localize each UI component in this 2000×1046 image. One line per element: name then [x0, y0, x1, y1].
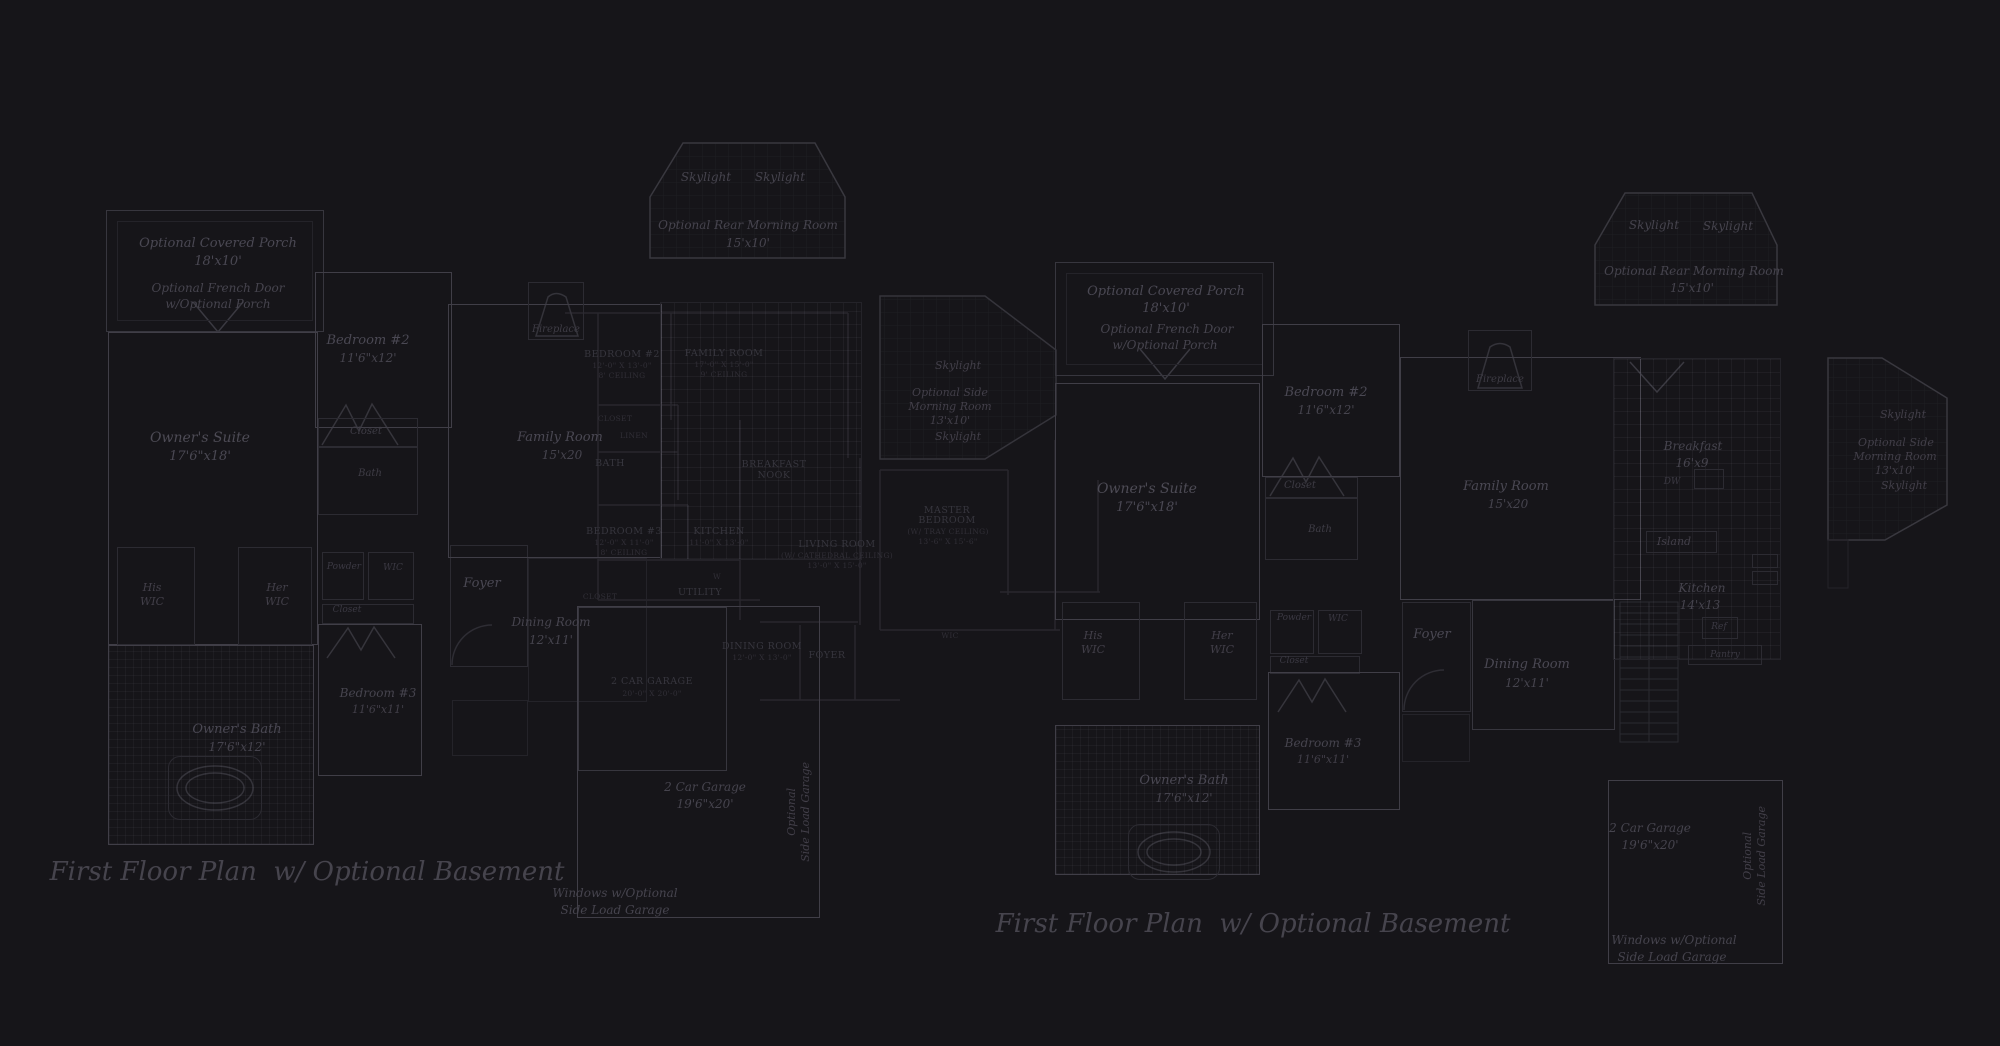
label-dining-left: Dining Room [495, 615, 607, 630]
label-foyer-left: Foyer [442, 576, 522, 592]
label-kitchen-right: Kitchen [1622, 581, 1782, 596]
label-french-door-2-left: w/Optional Porch [138, 297, 298, 312]
label-owners-suite-right: Owner's Suite [1067, 481, 1227, 499]
dishwasher-right [1694, 469, 1724, 489]
caption-right: First Floor Plan w/ Optional Basement [973, 908, 1533, 941]
label-windows-2-right: Side Load Garage [1592, 950, 1752, 965]
label-breakfast-right: Breakfast [1613, 439, 1773, 454]
label-rear-morning-left: Optional Rear Morning Room [648, 218, 848, 233]
caption-left: First Floor Plan w/ Optional Basement [27, 856, 587, 889]
label-porch-dims-left: 18'x10' [168, 254, 268, 270]
label-basement-kitchen-d1: 11'-0" X 13'-0" [669, 538, 769, 547]
front-stoop-right [1402, 714, 1470, 762]
label-side-skylight-2-left: Skylight [918, 430, 998, 444]
label-wic-left: WIC [363, 563, 423, 574]
label-garage-right: 2 Car Garage [1580, 821, 1720, 836]
label-basement-living-d1: (W/ CATHEDRAL CEILING) [777, 551, 897, 560]
label-garage-dims-left: 19'6"x20' [635, 797, 775, 812]
label-basement-closet: CLOSET [575, 414, 655, 423]
label-basement-bedroom2: BEDROOM #2 [572, 349, 672, 361]
label-pantry-right: Pantry [1685, 650, 1765, 661]
label-basement-garage: 2 CAR GARAGE [602, 676, 702, 688]
label-dw-right: DW [1652, 477, 1692, 488]
label-side-morning-dims-right: 13'x10' [1845, 464, 1945, 478]
label-his-wic-right: WIC [1063, 643, 1123, 657]
label-optional-side-load-1-left: Optional [785, 737, 799, 887]
label-foyer-right: Foyer [1392, 627, 1472, 643]
label-his-left: His [122, 581, 182, 595]
label-basement-foyer: FOYER [787, 650, 867, 662]
label-rear-morning-dims-left: 15'x10' [698, 236, 798, 251]
label-side-skylight-1-left: Skylight [918, 359, 998, 373]
label-dining-dims-right: 12'x11' [1452, 676, 1602, 691]
label-basement-living-d2: 13'-0" X 15'-0" [787, 561, 887, 570]
label-basement-garage-d1: 20'-0" X 20'-0" [602, 689, 702, 698]
label-rear-morning-right: Optional Rear Morning Room [1594, 264, 1794, 279]
label-closet2-left: Closet [317, 605, 377, 616]
label-side-morning-2-right: Morning Room [1845, 450, 1945, 464]
label-basement-wic: WIC [920, 631, 980, 640]
label-owners-bath-dims-right: 17'6"x12' [1104, 791, 1264, 806]
label-french-door-1-left: Optional French Door [128, 281, 308, 296]
label-family-room-right: Family Room [1426, 479, 1586, 495]
label-optional-side-load-2-left: Side Load Garage [799, 737, 813, 887]
label-closet2-right: Closet [1264, 656, 1324, 667]
label-skylight-1-right: Skylight [1614, 218, 1694, 233]
label-owners-bath-dims-left: 17'6"x12' [157, 740, 317, 755]
label-basement-closet2: CLOSET [560, 592, 640, 601]
label-bath-right: Bath [1280, 524, 1360, 537]
label-bedroom2-dims-right: 11'6"x12' [1256, 403, 1396, 418]
label-skylight-2-right: Skylight [1688, 219, 1768, 234]
kitchen-breakfast-zone-right [1613, 358, 1781, 660]
label-porch-right: Optional Covered Porch [1066, 284, 1266, 300]
label-bath-left: Bath [330, 468, 410, 481]
label-basement-master-d2: 13'-6" X 15'-6" [898, 537, 998, 546]
label-garage-dims-right: 19'6"x20' [1580, 838, 1720, 853]
label-optional-side-load-1-right: Optional [1741, 781, 1755, 931]
label-wic-right: WIC [1308, 614, 1368, 625]
label-side-skylight-1-right: Skylight [1863, 408, 1943, 422]
label-side-morning-1-left: Optional Side [900, 386, 1000, 400]
label-her-left: Her [247, 581, 307, 595]
label-basement-bath: BATH [570, 458, 650, 470]
label-fireplace-right: Fireplace [1460, 374, 1540, 387]
label-porch-left: Optional Covered Porch [118, 236, 318, 252]
label-basement-bedroom3-d1: 12'-0" X 11'-0" [574, 538, 674, 547]
label-basement-washer: W [707, 572, 727, 581]
label-ref-right: Ref [1699, 622, 1739, 633]
tub-surround-left [168, 756, 262, 820]
label-optional-side-load-2-right: Side Load Garage [1755, 781, 1769, 931]
label-bedroom2-left: Bedroom #2 [298, 333, 438, 349]
label-basement-bedroom2-d2: 8' CEILING [572, 371, 672, 380]
label-french-door-1-right: Optional French Door [1077, 322, 1257, 337]
label-garage-left: 2 Car Garage [635, 780, 775, 795]
label-breakfast-dims-right: 16'x9 [1642, 456, 1742, 471]
label-windows-2-left: Side Load Garage [535, 903, 695, 918]
label-porch-dims-right: 18'x10' [1116, 301, 1216, 317]
label-side-morning-dims-left: 13'x10' [900, 414, 1000, 428]
label-closet-left: Closet [326, 426, 406, 439]
label-her-right: Her [1192, 629, 1252, 643]
room-bath-left [318, 447, 418, 515]
label-owners-bath-left: Owner's Bath [157, 722, 317, 738]
label-bedroom3-dims-left: 11'6"x11' [308, 703, 448, 717]
label-side-morning-2-left: Morning Room [900, 400, 1000, 414]
label-bedroom3-dims-right: 11'6"x11' [1253, 753, 1393, 767]
wall-oven-1-right [1752, 554, 1778, 568]
label-bedroom3-left: Bedroom #3 [308, 686, 448, 701]
label-french-door-2-right: w/Optional Porch [1085, 338, 1245, 353]
label-her-wic-left: WIC [247, 595, 307, 609]
label-owners-suite-left: Owner's Suite [120, 430, 280, 448]
label-windows-1-right: Windows w/Optional [1594, 933, 1754, 948]
label-basement-kitchen: KITCHEN [669, 526, 769, 538]
kitchen-breakfast-zone-left [660, 302, 862, 560]
label-basement-bedroom3-d2: 8' CEILING [574, 548, 674, 557]
room-foyer-left [450, 545, 528, 667]
label-kitchen-dims-right: 14'x13 [1620, 598, 1780, 613]
label-side-skylight-2-right: Skylight [1864, 479, 1944, 493]
room-bedroom2-left [315, 272, 452, 428]
label-owners-bath-right: Owner's Bath [1104, 773, 1264, 789]
label-basement-linen: LINEN [594, 431, 674, 440]
label-bedroom2-dims-left: 11'6"x12' [298, 351, 438, 366]
label-dining-dims-left: 12'x11' [495, 633, 607, 648]
label-rear-morning-dims-right: 15'x10' [1642, 281, 1742, 296]
label-basement-master-2: BEDROOM [907, 515, 987, 527]
label-owners-suite-dims-left: 17'6"x18' [120, 449, 280, 465]
label-family-room-dims-right: 15'x20 [1428, 497, 1588, 512]
label-basement-family-d1: 17'-0" X 15'-0" [674, 360, 774, 369]
label-basement-family-room: FAMILY ROOM [674, 348, 774, 360]
label-bedroom3-right: Bedroom #3 [1253, 736, 1393, 751]
label-side-morning-1-right: Optional Side [1846, 436, 1946, 450]
label-bedroom2-right: Bedroom #2 [1256, 385, 1396, 401]
label-basement-bedroom2-d1: 12'-0" X 13'-0" [572, 361, 672, 370]
front-stoop-left [452, 700, 528, 756]
label-basement-breakfast-2: NOOK [724, 470, 824, 482]
tub-surround-right [1128, 824, 1220, 880]
label-skylight-2-left: Skylight [740, 170, 820, 185]
label-island-right: Island [1634, 535, 1714, 549]
label-skylight-1-left: Skylight [666, 170, 746, 185]
label-dining-right: Dining Room [1447, 657, 1607, 673]
label-owners-suite-dims-right: 17'6"x18' [1067, 500, 1227, 516]
label-basement-master-d1: (W/ TRAY CEILING) [898, 527, 998, 536]
label-his-right: His [1063, 629, 1123, 643]
floorplan-canvas: Optional Covered Porch 18'x10' Optional … [0, 0, 2000, 1046]
label-basement-utility: UTILITY [650, 587, 750, 599]
label-closet-right: Closet [1260, 480, 1340, 493]
label-basement-bedroom3: BEDROOM #3 [574, 526, 674, 538]
room-wic-left [368, 552, 414, 600]
label-his-wic-left: WIC [122, 595, 182, 609]
label-her-wic-right: WIC [1192, 643, 1252, 657]
label-fireplace-left: Fireplace [516, 324, 596, 337]
label-basement-family-d2: 9' CEILING [674, 370, 774, 379]
label-basement-living: LIVING ROOM [787, 539, 887, 551]
room-powder-left [322, 552, 364, 600]
